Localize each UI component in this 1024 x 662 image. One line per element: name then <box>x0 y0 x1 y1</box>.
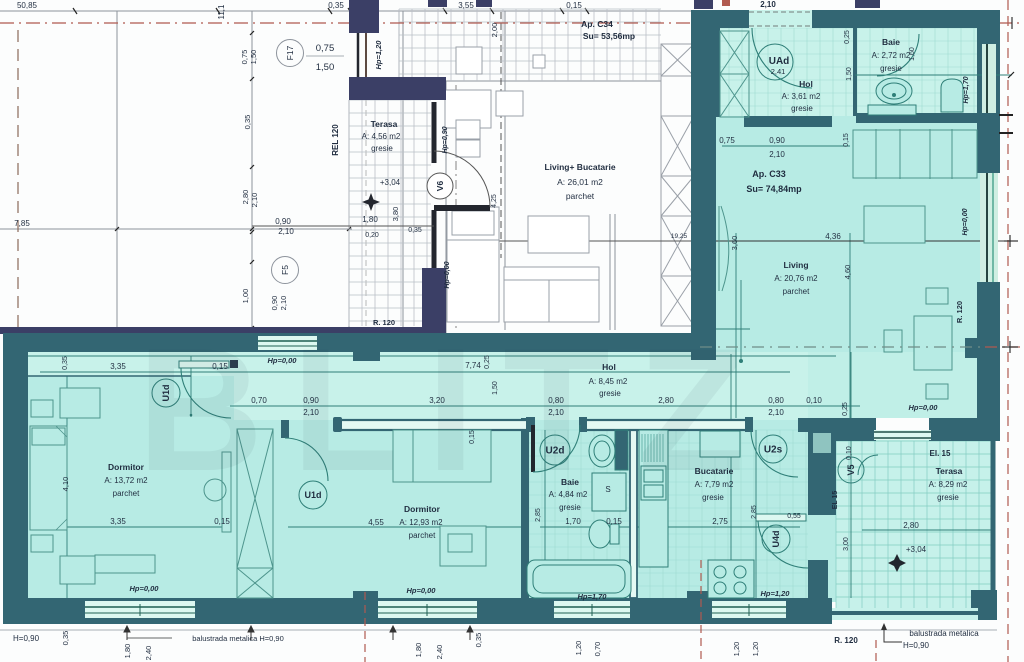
svg-text:0,75: 0,75 <box>240 50 249 65</box>
svg-text:V5: V5 <box>846 464 856 475</box>
svg-text:2,10: 2,10 <box>279 296 288 311</box>
svg-text:El. 15: El. 15 <box>930 449 951 458</box>
svg-text:4,55: 4,55 <box>368 518 384 527</box>
svg-text:0,90: 0,90 <box>275 217 291 226</box>
svg-text:0,20: 0,20 <box>365 232 379 239</box>
svg-text:Living+ Bucatarie: Living+ Bucatarie <box>544 162 615 172</box>
svg-text:F5: F5 <box>280 265 290 275</box>
svg-text:0,15: 0,15 <box>566 1 582 10</box>
svg-text:0,25: 0,25 <box>842 402 849 416</box>
svg-text:0,35: 0,35 <box>408 227 422 234</box>
svg-text:A: 3,61 m2: A: 3,61 m2 <box>782 92 821 101</box>
svg-text:4,25: 4,25 <box>491 194 498 208</box>
svg-text:Hp=0,00: Hp=0,00 <box>407 586 437 595</box>
svg-text:0,35: 0,35 <box>474 633 483 648</box>
svg-text:Terasa: Terasa <box>936 466 963 476</box>
svg-text:A: 12,93 m2: A: 12,93 m2 <box>399 518 443 527</box>
svg-text:gresie: gresie <box>937 493 959 502</box>
svg-text:4,36: 4,36 <box>825 232 841 241</box>
svg-text:Hp=0,00: Hp=0,00 <box>130 584 160 593</box>
svg-text:REL 120: REL 120 <box>331 124 340 156</box>
svg-text:0,35: 0,35 <box>243 115 252 130</box>
svg-text:0,90: 0,90 <box>270 296 279 311</box>
svg-text:1,50: 1,50 <box>249 50 258 65</box>
svg-text:0,90: 0,90 <box>769 136 785 145</box>
svg-text:0,15: 0,15 <box>214 517 230 526</box>
svg-text:0,15: 0,15 <box>843 133 850 147</box>
svg-text:A: 4,56 m2: A: 4,56 m2 <box>362 132 401 141</box>
svg-text:1,80: 1,80 <box>362 215 378 224</box>
svg-text:2,40: 2,40 <box>144 646 153 661</box>
svg-text:1,20: 1,20 <box>732 642 741 657</box>
svg-text:7,85: 7,85 <box>14 219 30 228</box>
svg-text:parchet: parchet <box>566 191 595 201</box>
svg-text:A: 8,29 m2: A: 8,29 m2 <box>929 480 968 489</box>
svg-text:Hp=0,90: Hp=0,90 <box>442 126 449 153</box>
svg-text:3,55: 3,55 <box>458 1 474 10</box>
svg-text:1,20: 1,20 <box>574 641 583 656</box>
svg-text:UAd: UAd <box>769 56 790 67</box>
svg-text:EL 15: EL 15 <box>832 491 839 510</box>
svg-text:2,85: 2,85 <box>535 508 542 522</box>
svg-text:Ap. C33: Ap. C33 <box>752 169 786 179</box>
svg-text:Hp=1,70: Hp=1,70 <box>963 76 970 103</box>
svg-text:0,10: 0,10 <box>806 396 822 405</box>
svg-text:A: 26,01 m2: A: 26,01 m2 <box>557 177 603 187</box>
svg-text:4,10: 4,10 <box>61 477 70 492</box>
svg-text:gresie: gresie <box>371 144 393 153</box>
svg-text:2,10: 2,10 <box>769 150 785 159</box>
svg-text:1,70: 1,70 <box>565 517 581 526</box>
svg-text:4,60: 4,60 <box>843 265 852 280</box>
svg-text:2,10: 2,10 <box>250 193 259 208</box>
svg-text:Hp=1,20: Hp=1,20 <box>761 589 791 598</box>
svg-text:19,25: 19,25 <box>671 233 688 240</box>
svg-text:3,60: 3,60 <box>730 236 739 251</box>
svg-text:Su= 53,56mp: Su= 53,56mp <box>583 31 635 41</box>
svg-text:1,50: 1,50 <box>316 62 335 73</box>
svg-text:11,1: 11,1 <box>217 4 226 20</box>
svg-text:1,80: 1,80 <box>414 643 423 658</box>
svg-text:parchet: parchet <box>783 287 810 296</box>
svg-text:0,25: 0,25 <box>844 30 851 44</box>
svg-text:3,00: 3,00 <box>843 537 850 551</box>
svg-text:1,20: 1,20 <box>751 642 760 657</box>
svg-text:balustrada metalica H=0,90: balustrada metalica H=0,90 <box>192 634 284 643</box>
svg-text:2,80: 2,80 <box>903 521 919 530</box>
svg-text:U4d: U4d <box>771 530 781 547</box>
svg-text:Su= 74,84mp: Su= 74,84mp <box>746 184 802 194</box>
svg-text:0,15: 0,15 <box>606 517 622 526</box>
svg-text:Living: Living <box>783 260 808 270</box>
svg-text:Hol: Hol <box>799 79 813 89</box>
svg-text:F17: F17 <box>285 45 295 60</box>
svg-text:0,75: 0,75 <box>316 43 335 54</box>
svg-text:gresie: gresie <box>880 64 902 73</box>
svg-text:0,35: 0,35 <box>61 631 70 646</box>
svg-text:Baie: Baie <box>882 37 900 47</box>
svg-text:A: 2,72 m2: A: 2,72 m2 <box>872 51 911 60</box>
svg-text:0,10: 0,10 <box>846 446 853 460</box>
svg-text:+3,04: +3,04 <box>380 178 401 187</box>
svg-text:2,80: 2,80 <box>241 190 250 205</box>
svg-text:0,70: 0,70 <box>593 642 602 657</box>
svg-text:parchet: parchet <box>409 531 436 540</box>
svg-text:2,00: 2,00 <box>490 23 499 38</box>
svg-text:R. 120: R. 120 <box>955 301 964 323</box>
svg-text:2,40: 2,40 <box>435 645 444 660</box>
svg-text:parchet: parchet <box>113 489 140 498</box>
svg-text:Hp=0,00: Hp=0,00 <box>444 261 451 288</box>
svg-text:Ap. C34: Ap. C34 <box>581 19 613 29</box>
svg-text:balustrada metalica: balustrada metalica <box>909 629 979 638</box>
svg-text:Hp=0,00: Hp=0,00 <box>909 403 939 412</box>
svg-text:2,41: 2,41 <box>771 67 786 76</box>
svg-text:1,50: 1,50 <box>846 67 853 81</box>
svg-text:Terasa: Terasa <box>371 119 398 129</box>
svg-text:3,35: 3,35 <box>110 517 126 526</box>
svg-text:V6: V6 <box>435 181 445 192</box>
svg-text:2,75: 2,75 <box>712 517 728 526</box>
svg-text:0,35: 0,35 <box>328 1 344 10</box>
svg-text:50,85: 50,85 <box>17 1 38 10</box>
svg-text:3,35: 3,35 <box>110 362 126 371</box>
svg-text:1,00: 1,00 <box>241 289 250 304</box>
svg-text:BLITZ: BLITZ <box>137 313 773 508</box>
svg-text:2,10: 2,10 <box>760 0 776 9</box>
svg-text:0,55: 0,55 <box>787 513 801 520</box>
svg-text:H=0,90: H=0,90 <box>13 634 40 643</box>
svg-text:R. 120: R. 120 <box>834 636 858 645</box>
svg-text:H=0,90: H=0,90 <box>903 641 930 650</box>
svg-text:0,75: 0,75 <box>719 136 735 145</box>
svg-text:Hp=1,70: Hp=1,70 <box>578 592 608 601</box>
svg-text:Hp=1,20: Hp=1,20 <box>374 40 383 70</box>
svg-text:A: 20,76 m2: A: 20,76 m2 <box>774 274 818 283</box>
svg-text:+3,04: +3,04 <box>906 545 927 554</box>
svg-text:Hp=0,00: Hp=0,00 <box>962 208 969 235</box>
svg-text:3,80: 3,80 <box>391 207 400 222</box>
svg-text:1,80: 1,80 <box>123 644 132 659</box>
svg-text:2,10: 2,10 <box>278 227 294 236</box>
svg-text:gresie: gresie <box>791 104 813 113</box>
svg-text:0,35: 0,35 <box>62 356 69 370</box>
